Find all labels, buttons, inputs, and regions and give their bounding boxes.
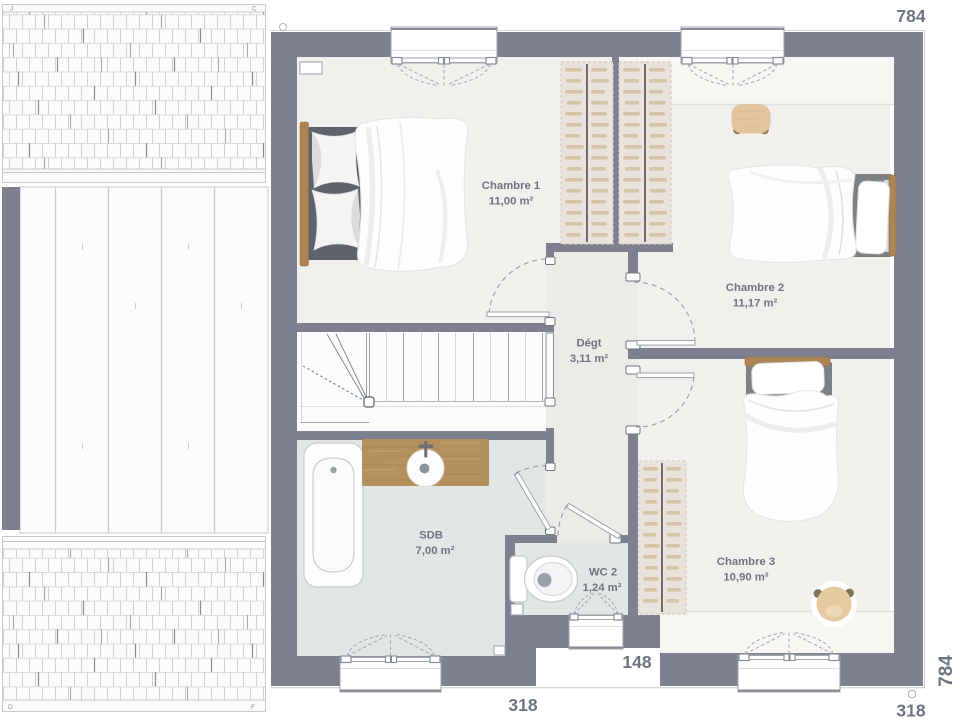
svg-text:Chambre 2: Chambre 2 [726, 282, 784, 294]
svg-text:Dégt: Dégt [576, 338, 601, 350]
svg-text:J: J [10, 6, 13, 13]
svg-text:WC 2: WC 2 [589, 567, 617, 579]
svg-text:11,17 m²: 11,17 m² [733, 298, 778, 310]
svg-text:C: C [252, 6, 257, 13]
svg-text:318: 318 [896, 701, 925, 721]
svg-text:3,11 m²: 3,11 m² [570, 353, 609, 365]
svg-text:SDB: SDB [419, 530, 443, 542]
svg-text:11,00 m²: 11,00 m² [489, 196, 534, 208]
svg-text:318: 318 [508, 695, 537, 715]
svg-text:7,00 m²: 7,00 m² [416, 545, 455, 557]
svg-text:10,90 m²: 10,90 m² [723, 572, 768, 584]
svg-text:148: 148 [622, 652, 651, 672]
svg-text:D: D [8, 704, 13, 711]
svg-text:784: 784 [896, 6, 925, 26]
svg-text:Chambre 3: Chambre 3 [717, 556, 775, 568]
svg-text:784: 784 [936, 655, 957, 687]
svg-text:Chambre 1: Chambre 1 [482, 180, 540, 192]
svg-text:1,24 m²: 1,24 m² [583, 582, 622, 594]
svg-text:F: F [251, 704, 255, 711]
